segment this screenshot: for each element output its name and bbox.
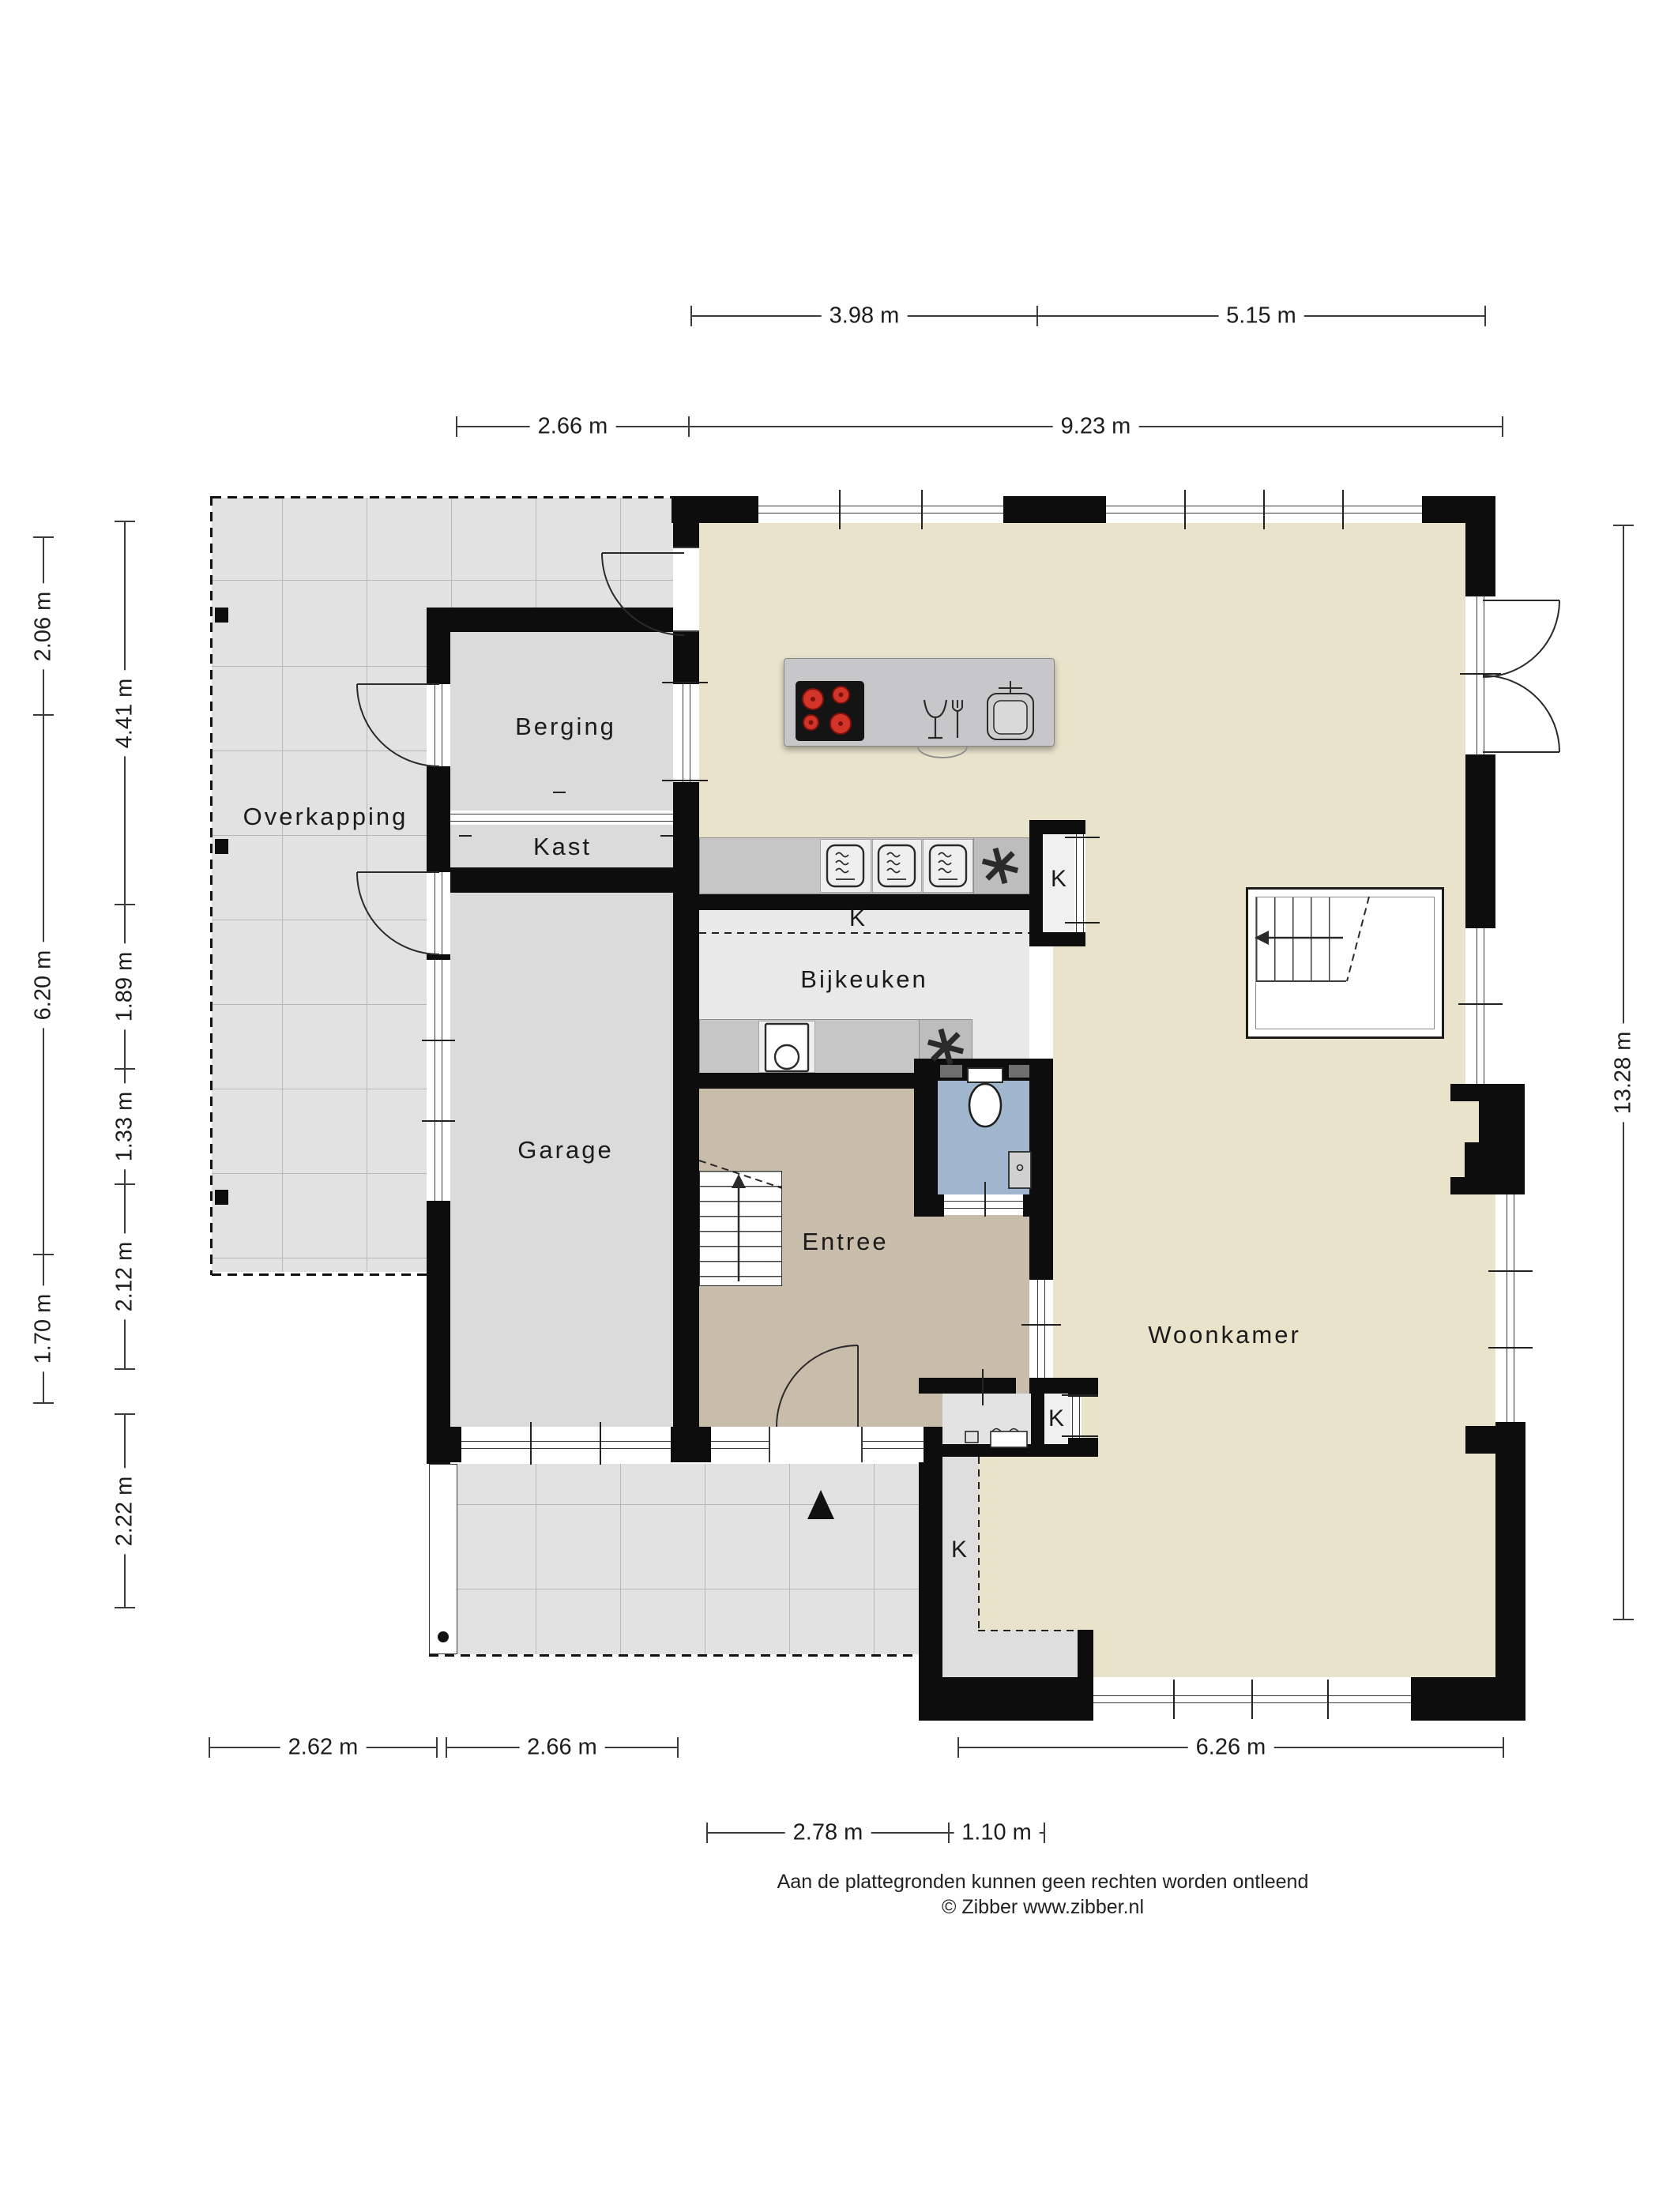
glass-panel (1029, 1280, 1053, 1378)
room-label-bijkeuken: Bijkeuken (800, 965, 927, 994)
porch-dash-bottom (429, 1654, 919, 1657)
dim-left-133: 1.33 m (115, 1069, 135, 1184)
oven-cell-1 (820, 839, 871, 893)
window-tick-v-5 (530, 1422, 532, 1465)
win-entree-south-2 (863, 1427, 924, 1462)
window-tick-h-14 (459, 835, 472, 837)
window-tick-h-3 (1488, 1347, 1533, 1349)
dim-left-222-label: 2.22 m (111, 1468, 140, 1554)
dim-left-441-label: 4.41 m (111, 670, 140, 756)
french-door-opening (1465, 596, 1495, 754)
dim-left-212-label: 2.12 m (111, 1234, 140, 1320)
overkapping-dash-left (210, 496, 213, 1275)
dim-bottom-110-label: 1.10 m (954, 1820, 1040, 1846)
window-tick-h-5 (422, 1120, 455, 1122)
burner-1 (802, 688, 824, 710)
closet-label-k-bijkeuken: K (849, 905, 865, 932)
window-tick-v-4 (1342, 490, 1344, 529)
win-right-2 (1495, 1194, 1525, 1422)
dim-left-441: 4.41 m (115, 521, 135, 905)
win-k-entree (1070, 1397, 1082, 1438)
k-zone-dash-h (978, 1630, 1079, 1631)
closet-label-k-woonkamer: K (951, 1537, 967, 1563)
window-tick-v-11 (982, 1369, 984, 1405)
overkapping-tiles-top (212, 498, 675, 608)
dim-bottom-266-label: 2.66 m (519, 1735, 605, 1761)
closets-divider (1031, 1394, 1044, 1444)
dim-bottom-262-label: 2.62 m (280, 1735, 367, 1761)
window-tick-v-7 (1173, 1680, 1175, 1719)
window-tick-h-6 (662, 682, 708, 683)
dim-top-398-label: 3.98 m (822, 303, 908, 329)
closets-top-wall-b (1029, 1378, 1068, 1394)
dim-top-515-label: 5.15 m (1218, 303, 1304, 329)
k-zone-step (1078, 1630, 1093, 1677)
right-wall-step (1465, 1426, 1525, 1454)
overkapping-dash-top (212, 496, 686, 498)
outer-left-wall-2 (427, 766, 450, 872)
dim-top-515: 5.15 m (1037, 306, 1485, 326)
window-tick-v-1 (921, 490, 923, 529)
window-tick-h-8 (1065, 837, 1100, 838)
woonkamer-floor-sw (978, 1457, 1057, 1630)
k-kitchen-wall-left (1029, 820, 1043, 946)
window-tick-h-13 (553, 792, 566, 793)
freezer-zone-top (973, 837, 1037, 894)
bijkeuken-south-wall (673, 1073, 938, 1089)
berging-top-wall (427, 608, 699, 632)
south-wall-garage-b (671, 1427, 711, 1462)
room-label-entree: Entree (802, 1228, 888, 1256)
dim-bottom-110: 1.10 m (949, 1823, 1044, 1843)
toilet-bottom-wall-a (914, 1194, 944, 1217)
window-tick-v-3 (1263, 490, 1265, 529)
k-kitchen-wall-bottom (1029, 932, 1085, 946)
meterkast-floor (942, 1394, 1031, 1444)
dim-top-398: 3.98 m (691, 306, 1037, 326)
west-wall-top (673, 496, 699, 547)
footer-disclaimer: Aan de plattegronden kunnen geen rechten… (608, 1871, 1477, 1894)
window-tick-h-7 (662, 780, 708, 781)
window-tick-v-6 (600, 1422, 601, 1465)
dim-top-923: 9.23 m (689, 416, 1503, 437)
dim-left-620-label: 6.20 m (29, 942, 58, 1028)
dim-right-1328-label: 13.28 m (1609, 1023, 1638, 1122)
south-wall-garage-a (427, 1427, 461, 1462)
overkapping-tiles-left (212, 608, 427, 1272)
fireplace-notch-1 (1450, 1101, 1479, 1142)
right-wall-upper (1465, 496, 1495, 596)
room-label-kast: Kast (533, 833, 592, 861)
berging-kast-band (450, 811, 673, 825)
window-tick-v-10 (984, 1182, 986, 1217)
window-tick-h-1 (1458, 1003, 1503, 1005)
k-zone-floor-b (978, 1630, 1093, 1677)
window-tick-v-2 (1184, 490, 1186, 529)
footer-copyright: © Zibber www.zibber.nl (608, 1896, 1477, 1919)
room-label-woonkamer: Woonkamer (1148, 1321, 1301, 1349)
top-wall-mid (1003, 496, 1106, 523)
dim-left-133-label: 1.33 m (111, 1084, 140, 1170)
dim-top-266-label: 2.66 m (530, 414, 616, 440)
dim-left-206-label: 2.06 m (29, 583, 58, 669)
overkapping-post-2 (215, 839, 228, 854)
win-garage-west (427, 960, 450, 1201)
dim-bottom-626: 6.26 m (958, 1737, 1503, 1758)
dim-left-222: 2.22 m (115, 1414, 135, 1608)
bijkeuken-k-dash (699, 932, 1029, 934)
window-tick-v-0 (839, 490, 841, 529)
right-wall-mid (1465, 754, 1495, 928)
dim-top-923-label: 9.23 m (1053, 414, 1139, 440)
dim-left-170-label: 1.70 m (29, 1286, 58, 1372)
fireplace-notch-2 (1450, 1142, 1465, 1177)
kitchen-door-opening (673, 547, 699, 632)
win-top-1 (758, 496, 1003, 523)
closet-label-k-entree: K (1048, 1405, 1064, 1432)
dim-right-1328: 13.28 m (1613, 525, 1634, 1619)
oven-cell-2 (872, 839, 922, 893)
window-tick-h-11 (1062, 1435, 1098, 1437)
win-berging-east (673, 684, 699, 782)
room-label-garage: Garage (517, 1136, 613, 1164)
room-label-overkapping: Overkapping (243, 803, 408, 831)
dim-bottom-266: 2.66 m (446, 1737, 678, 1758)
west-wing-wall (919, 1457, 942, 1721)
dim-top-266: 2.66 m (457, 416, 689, 437)
window-tick-h-10 (1062, 1394, 1098, 1396)
dim-left-212: 2.12 m (115, 1184, 135, 1369)
window-tick-h-0 (1460, 673, 1501, 675)
outer-left-wall-4 (427, 1201, 450, 1464)
window-tick-h-2 (1488, 1270, 1533, 1272)
dim-bottom-278: 2.78 m (707, 1823, 949, 1843)
dim-left-170: 1.70 m (33, 1255, 54, 1403)
bottom-wall-left (919, 1677, 1093, 1721)
k-zone-dash-v (978, 1457, 980, 1630)
burner-4 (829, 713, 852, 735)
window-tick-v-9 (1327, 1680, 1329, 1719)
overkapping-post-3 (215, 1190, 228, 1205)
entree-east-wall (1029, 1217, 1053, 1280)
dim-bottom-278-label: 2.78 m (785, 1820, 871, 1846)
win-entree-south-1 (711, 1427, 769, 1462)
porch-strip (429, 1464, 457, 1654)
right-wall-lower (1495, 1422, 1525, 1721)
closets-top-wall-a (919, 1378, 1016, 1394)
burner-3 (803, 714, 819, 731)
closets-bottom-wall (919, 1444, 1082, 1457)
berging-door-opening (427, 684, 450, 766)
overkapping-post-1 (215, 608, 228, 623)
toilet-slider (944, 1194, 1023, 1215)
window-tick-h-9 (1065, 922, 1100, 924)
oven-cell-3 (923, 839, 973, 893)
win-right-1 (1465, 928, 1495, 1084)
dim-left-620: 6.20 m (33, 715, 54, 1255)
washer-cell (758, 1021, 815, 1073)
k-zone-floor-a (942, 1457, 978, 1677)
overkapping-dash-bottom (212, 1273, 428, 1276)
dim-bottom-626-label: 6.26 m (1188, 1735, 1274, 1761)
toilet-floor (938, 1081, 1029, 1194)
win-k-kitchen (1074, 834, 1085, 932)
dim-left-206: 2.06 m (33, 537, 54, 715)
room-label-berging: Berging (515, 713, 616, 741)
kast-garage-wall (427, 867, 699, 893)
toilet-bottom-wall-b (1023, 1194, 1053, 1217)
dim-bottom-262: 2.62 m (209, 1737, 437, 1758)
stairwell-tread-edge (1256, 980, 1346, 982)
dim-left-189-label: 1.89 m (111, 944, 140, 1030)
entree-stairs (699, 1171, 782, 1286)
outer-left-wall-1 (427, 608, 450, 684)
window-tick-h-12 (1021, 1324, 1061, 1326)
toilet-vent-1 (940, 1065, 962, 1078)
closet-label-k-kitchen: K (1051, 866, 1066, 893)
stairwell-treads (1256, 897, 1346, 981)
floorplan-canvas: Aan de plattegronden kunnen geen rechten… (0, 0, 1659, 2212)
toilet-vent-2 (1009, 1065, 1029, 1078)
bottom-wall-right (1411, 1677, 1525, 1721)
front-door-opening (769, 1427, 863, 1462)
burner-2 (832, 686, 850, 704)
toilet-right-wall (1029, 1059, 1053, 1217)
garage-door-opening (427, 872, 450, 954)
toilet-left-wall (914, 1059, 938, 1217)
win-garage-south (461, 1427, 671, 1462)
porch-tiles (457, 1464, 919, 1654)
window-tick-v-8 (1251, 1680, 1253, 1719)
dim-left-189: 1.89 m (115, 905, 135, 1069)
window-tick-h-15 (660, 835, 673, 837)
window-tick-h-4 (422, 1040, 455, 1041)
